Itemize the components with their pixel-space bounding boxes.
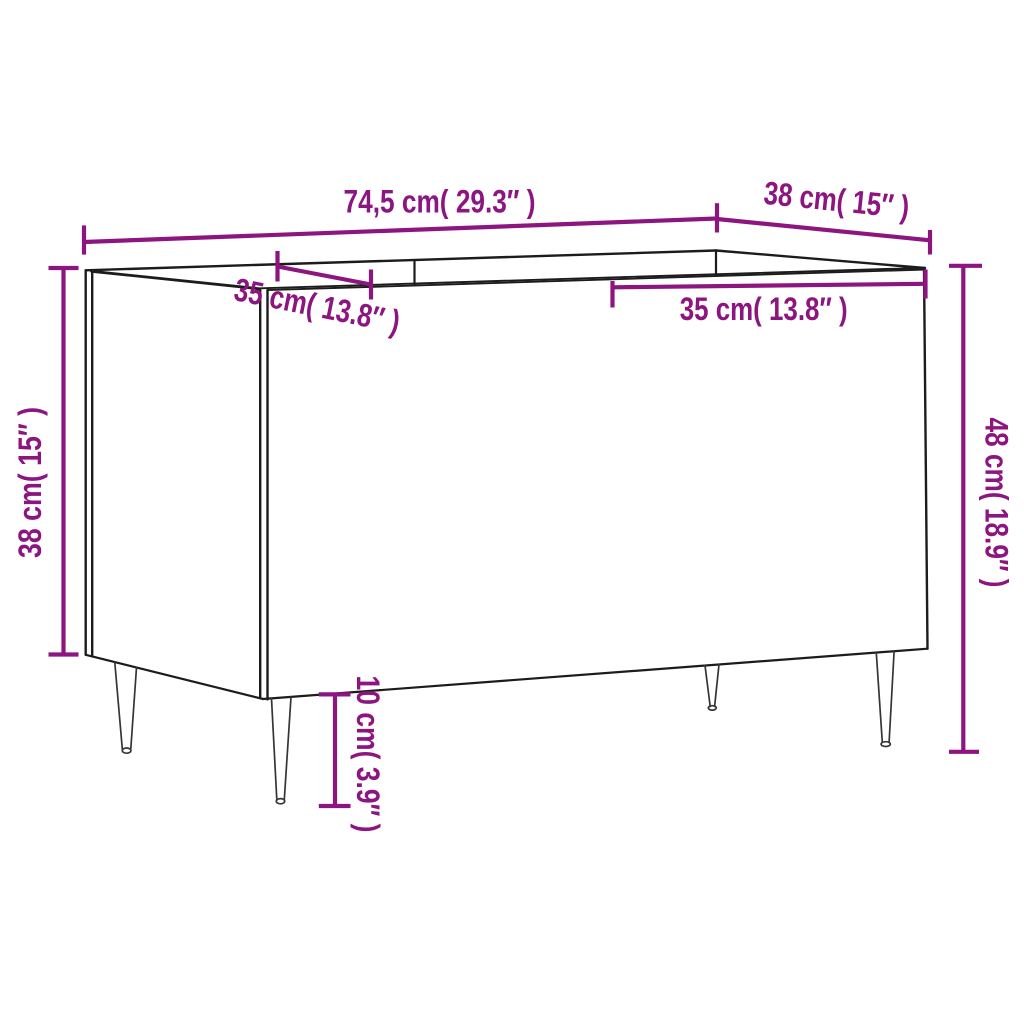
svg-text:35 cm( 13.8″ ): 35 cm( 13.8″ )	[680, 291, 848, 327]
svg-text:10 cm( 3.9″ ): 10 cm( 3.9″ )	[350, 676, 386, 833]
svg-text:74,5 cm( 29.3″ ): 74,5 cm( 29.3″ )	[344, 184, 536, 220]
svg-text:48 cm( 18.9″ ): 48 cm( 18.9″ )	[979, 418, 1015, 588]
svg-text:38 cm( 15″ ): 38 cm( 15″ )	[12, 407, 48, 558]
